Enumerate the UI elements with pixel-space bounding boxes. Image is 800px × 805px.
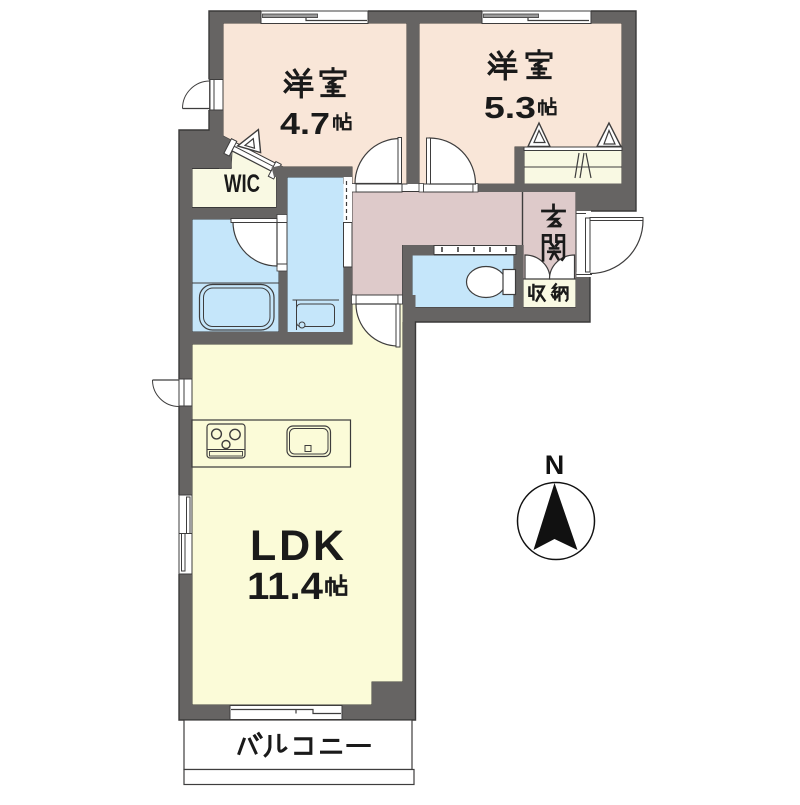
svg-text:4.7: 4.7 xyxy=(280,106,330,141)
svg-text:5.3: 5.3 xyxy=(484,90,536,125)
svg-text:WIC: WIC xyxy=(224,170,260,198)
svg-text:11.4: 11.4 xyxy=(247,566,323,608)
svg-text:LDK: LDK xyxy=(250,522,344,570)
svg-text:N: N xyxy=(545,450,565,480)
